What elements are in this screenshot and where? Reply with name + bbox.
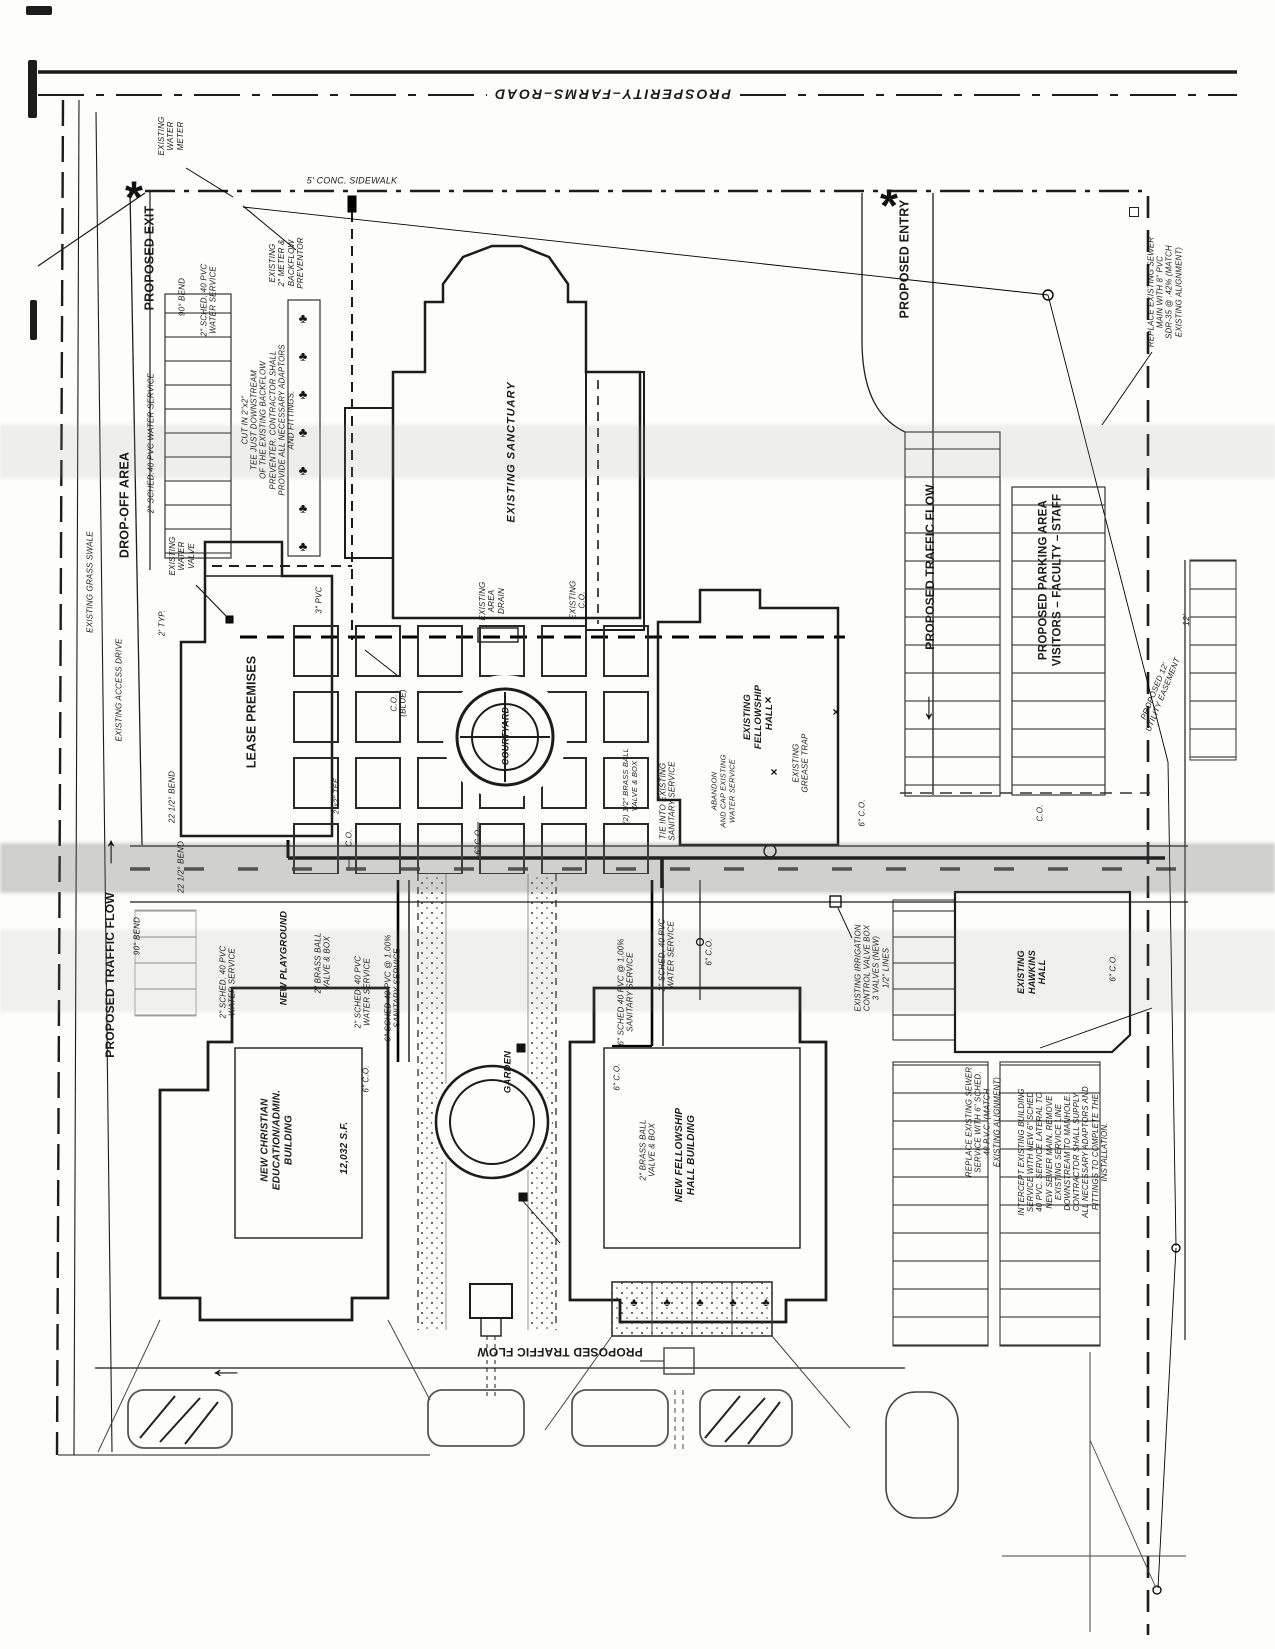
utility-lines	[186, 168, 1180, 1594]
existing-water-meter-label: EXISTING WATER METER	[157, 117, 185, 156]
hawkins-hall-label: EXISTING HAWKINS HALL	[1016, 950, 1048, 994]
parking-area-label: PROPOSED PARKING AREA VISITORS – FACULTY…	[1037, 494, 1064, 666]
tee-label: 2"x2" TEE	[333, 778, 342, 814]
tree-symbol: ♣	[696, 1297, 703, 1309]
site-plan-sheet: PROSPERITY–FARMS–ROAD5' CONC. SIDEWALKEX…	[0, 0, 1275, 1649]
traffic-arrow-south: →	[918, 689, 949, 728]
abandon-cap-label: ABANDON AND CAP EXISTING WATER SERVICE	[711, 754, 738, 827]
bend-90-label-top: 90° BEND	[177, 278, 186, 316]
tree-symbol: ♣	[299, 463, 308, 478]
typ-dim-label: 2' TYP.	[157, 610, 166, 636]
sqft-label: 12,032 S.F.	[339, 1122, 351, 1175]
water-service-label-top: 2" SCHED. 40 PVC WATER SERVICE	[200, 264, 219, 337]
sidewalk-label: 5' CONC. SIDEWALK	[307, 176, 397, 187]
note-cut-in-tee: CUT IN 2"x2" TEE JUST DOWNSTREAM OF THE …	[240, 344, 295, 495]
brass-ball-half-label: (2) 1/2" BRASS BALL VALVE & BOX	[622, 748, 640, 824]
asterisk-marker-east: *	[880, 193, 898, 218]
scan-edge-smudge	[26, 6, 52, 15]
co-6-label-c: 6" C.O.	[361, 1065, 370, 1092]
sanitary-service-label-a: 6" SCHED 40 PVC @ 1.00% SANITARY SERVICE	[384, 934, 403, 1041]
co-6-label-b: 6" C.O.	[857, 799, 866, 826]
x-mark: ×	[770, 765, 777, 779]
scan-edge-smudge	[28, 60, 37, 118]
grease-trap-label: EXISTING GREASE TRAP	[792, 733, 811, 792]
road-name: PROSPERITY–FARMS–ROAD	[487, 86, 737, 103]
water-service-label-left: 2" SCHED.40 PVC WATER SERVICE	[146, 373, 155, 514]
garden	[418, 874, 556, 1398]
tree-symbol: ♣	[299, 425, 308, 440]
new-playground-label: NEW PLAYGROUND	[278, 911, 289, 1005]
existing-co-label: EXISTING C.O.	[569, 581, 588, 620]
valve-box-marker	[519, 1193, 528, 1202]
tree-symbol: ♣	[299, 387, 308, 402]
irrigation-label: EXISTING IRRIGATION CONTROL VALVE BOX 3 …	[854, 924, 891, 1011]
sanitary-service-label-b: 6" SCHED 40 PVC @ 1.00% SANITARY SERVICE	[617, 938, 636, 1045]
note-replace-sewer-main: REPLACE EXISTING SEWER MAIN WITH 8" PVC …	[1147, 237, 1184, 347]
existing-access-drive-label: EXISTING ACCESS DRIVE	[114, 638, 123, 741]
brass-ball-label-b: 2" BRASS BALL VALVE & BOX	[639, 1119, 658, 1180]
plan-linework	[0, 0, 1275, 1649]
x-mark: ×	[764, 693, 771, 707]
tie-into-label: TIE INTO EXISTING SANITARY SERVICE	[659, 761, 678, 840]
asterisk-marker-west: *	[125, 185, 143, 210]
bend-90-label-left: 90° BEND	[132, 917, 141, 955]
co-6-label-courtyard: 6" C.O.	[473, 827, 482, 854]
traffic-flow-right-label: PROPOSED TRAFFIC FLOW	[923, 484, 937, 650]
tree-symbol: ♣	[299, 501, 308, 516]
tree-symbol: ♣	[299, 349, 308, 364]
note-replace-sewer-service: REPLACE EXISTING SEWER SERVICE WITH 6" S…	[965, 1067, 1002, 1177]
co-blue-label: C.O. (BLUE)	[390, 689, 409, 716]
brass-ball-label-a: 2" BRASS BALL VALVE & BOX	[314, 932, 333, 993]
dim-12-label: 12'	[1181, 614, 1191, 626]
tree-symbol: ♣	[663, 1297, 670, 1309]
existing-grass-swale-label: EXISTING GRASS SWALE	[85, 531, 94, 633]
co-6-label-f: 6" C.O.	[1108, 954, 1117, 981]
x-mark: ×	[832, 705, 839, 719]
co-6-label-e: 6" C.O.	[612, 1063, 621, 1090]
traffic-arrow-west: →	[207, 1362, 246, 1393]
new-fellowship-outline	[570, 988, 826, 1322]
tree-symbol: ♣	[299, 539, 308, 554]
bend-22-label-mid: 22 1/2° BEND	[167, 771, 176, 823]
co-label-a: C.O.	[344, 829, 353, 846]
garden-label: GARDEN	[502, 1051, 513, 1093]
co-6-label-d: 6" C.O.	[704, 938, 713, 965]
bend-22-label-left: 22 1/2° BEND	[176, 841, 185, 893]
existing-sanctuary-label: EXISTING SANCTUARY	[506, 381, 519, 522]
tree-symbol: ♣	[729, 1297, 736, 1309]
proposed-entry-label: PROPOSED ENTRY	[898, 199, 913, 318]
tree-symbol: ♣	[762, 1297, 769, 1309]
scan-edge-smudge	[30, 300, 37, 340]
new-fellowship-label: NEW FELLOWSHIP HALL BUILDING	[674, 1108, 698, 1202]
drop-off-area-label: DROP-OFF AREA	[118, 452, 133, 558]
meter-backflow-label: EXISTING 2" METER & BACKFLOW PREVENTOR	[268, 237, 306, 288]
water-service-label-a: 2" SCHED. 40 PVC WATER SERVICE	[219, 946, 238, 1019]
courtyard-label: COURTYARD	[501, 707, 512, 765]
traffic-flow-bottom-label: PROPOSED TRAFFIC FLOW	[477, 1345, 643, 1359]
water-service-label-c: 2" SCHED. 40 PVC WATER SERVICE	[658, 919, 677, 992]
tree-symbol: ♣	[299, 311, 308, 326]
traffic-arrow-north: →	[92, 833, 123, 872]
note-intercept: INTERCEPT EXISTING BUILDING SERVICE WITH…	[1017, 1086, 1109, 1218]
valve-box-marker	[517, 1044, 526, 1053]
christian-ed-label: NEW CHRISTIAN EDUCATION/ADMIN. BUILDING	[259, 1090, 294, 1190]
existing-area-drain-label: EXISTING AREA DRAIN	[478, 582, 506, 621]
lease-premises-label: LEASE PREMISES	[245, 656, 260, 769]
existing-water-valve-label: EXISTING WATER VALVE	[168, 537, 196, 576]
water-service-label-b: 2" SCHED. 40 PVC WATER SERVICE	[354, 956, 373, 1029]
traffic-flow-left-label: PROPOSED TRAFFIC FLOW	[103, 892, 117, 1058]
proposed-exit-label: PROPOSED EXIT	[143, 206, 158, 311]
pvc-3in-label: 3" PVC	[314, 586, 323, 613]
tree-symbol: ♣	[630, 1297, 637, 1309]
box-symbol	[1129, 207, 1139, 217]
co-label-c: C.O.	[1035, 804, 1044, 821]
